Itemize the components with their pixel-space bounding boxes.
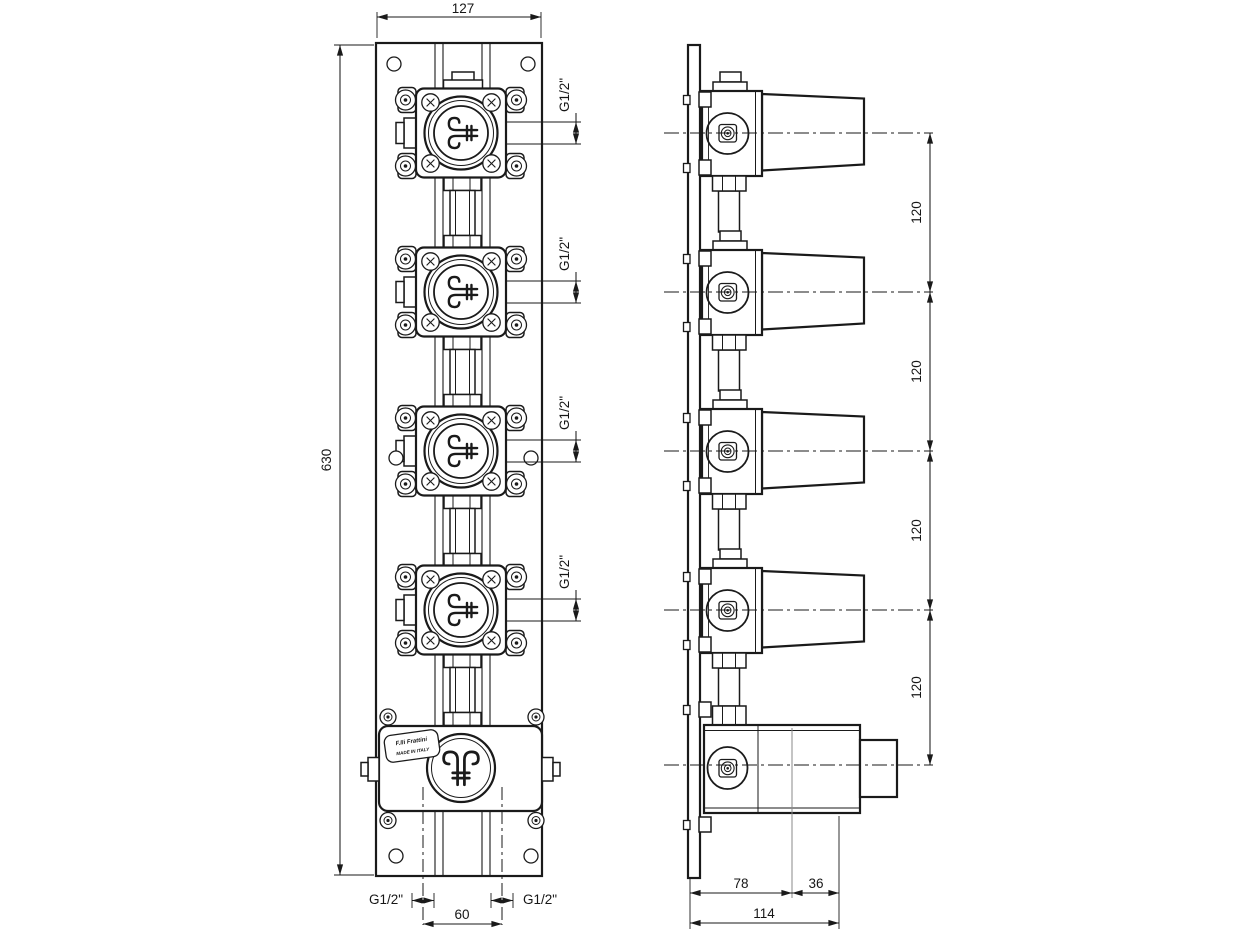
valve-front-1 — [396, 88, 527, 179]
pipe-side — [719, 509, 740, 550]
fixing-bolt — [684, 821, 691, 830]
technical-drawing-page: F.lli Frattini MADE IN ITALY 127 630 — [0, 0, 1253, 940]
valve-side-2 — [684, 231, 865, 350]
pipe-segment-3 — [444, 496, 481, 567]
pipe-side — [719, 668, 740, 706]
dim-port-text: G1/2" — [557, 396, 572, 430]
dim-width-text: 127 — [452, 1, 475, 16]
box-screw — [380, 709, 396, 725]
box-inlet-nut — [713, 706, 747, 725]
dim-width: 127 — [377, 1, 541, 38]
pipe-segment-2 — [444, 337, 481, 408]
pipe-segment-4 — [444, 655, 481, 726]
box-screw — [528, 709, 544, 725]
box-screw — [528, 813, 544, 829]
valve-front-4 — [396, 565, 527, 656]
side-view: 120 120 120 120 78 36 114 — [664, 45, 933, 929]
dim-spacing-chain: 120 120 120 120 — [909, 133, 930, 765]
dim-height: 630 — [319, 45, 374, 875]
pipe-side — [719, 350, 740, 391]
dim-outlet-spacing: 60 — [423, 907, 502, 924]
valve-side-3 — [684, 390, 865, 509]
junction-box-front: F.lli Frattini MADE IN ITALY — [361, 709, 560, 829]
fixing-bolt — [684, 706, 691, 715]
dim-outlet-right: G1/2" — [491, 892, 557, 908]
pipe-segment-1 — [444, 178, 481, 249]
dim-depth-total-text: 114 — [753, 906, 775, 921]
valve-side-4 — [684, 549, 865, 668]
valve-manifold-drawing: F.lli Frattini MADE IN ITALY 127 630 — [0, 0, 1253, 940]
pipe-side — [719, 191, 740, 232]
dim-outlet-right-text: G1/2" — [523, 892, 557, 907]
front-view: F.lli Frattini MADE IN ITALY 127 630 — [319, 1, 581, 925]
dim-port-text: G1/2" — [557, 237, 572, 271]
dim-spacing-text: 120 — [909, 201, 924, 224]
dim-spacing-text: 120 — [909, 360, 924, 383]
box-screw — [380, 813, 396, 829]
dim-spacing-text: 120 — [909, 676, 924, 699]
dim-outlet-left-text: G1/2" — [369, 892, 403, 907]
cartridge-stub — [860, 740, 897, 797]
dim-port-text: G1/2" — [557, 78, 572, 112]
dim-outlet-spacing-text: 60 — [454, 907, 469, 922]
dim-depth-trim-text: 36 — [808, 876, 823, 891]
dim-depth-body-text: 78 — [733, 876, 748, 891]
dim-height-text: 630 — [319, 449, 334, 472]
valve-front-2 — [396, 247, 527, 338]
dim-spacing-text: 120 — [909, 519, 924, 542]
valve-front-3 — [396, 406, 527, 497]
valve-side-1 — [684, 72, 865, 191]
dim-outlet-left: G1/2" — [369, 892, 434, 908]
dim-port-text: G1/2" — [557, 555, 572, 589]
